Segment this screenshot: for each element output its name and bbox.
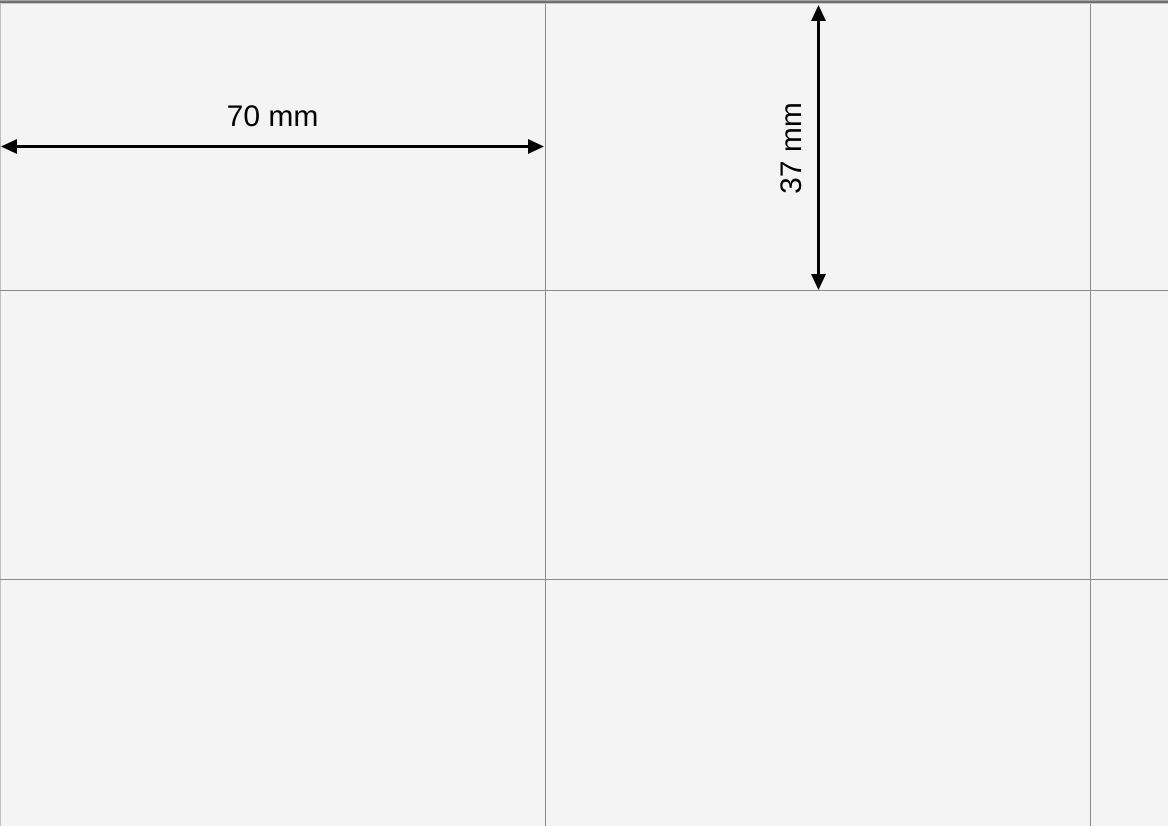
sheet-top-edge — [0, 0, 1168, 4]
width-dimension-label: 70 mm — [0, 99, 545, 135]
grid-line-horizontal-2 — [0, 579, 1168, 580]
arrow-up-head-icon — [811, 5, 826, 21]
arrow-left-head-icon — [1, 139, 17, 154]
arrow-right-head-icon — [528, 139, 544, 154]
arrow-down-head-icon — [811, 274, 826, 290]
grid-line-horizontal-1 — [0, 290, 1168, 291]
height-dimension-label: 37 mm — [774, 88, 810, 208]
grid-line-vertical-2 — [1090, 4, 1091, 826]
label-sheet: 70 mm 37 mm — [0, 0, 1168, 826]
width-dimension-arrow — [1, 139, 544, 154]
grid-line-vertical-1 — [545, 4, 546, 826]
height-dimension-arrow — [811, 5, 826, 290]
